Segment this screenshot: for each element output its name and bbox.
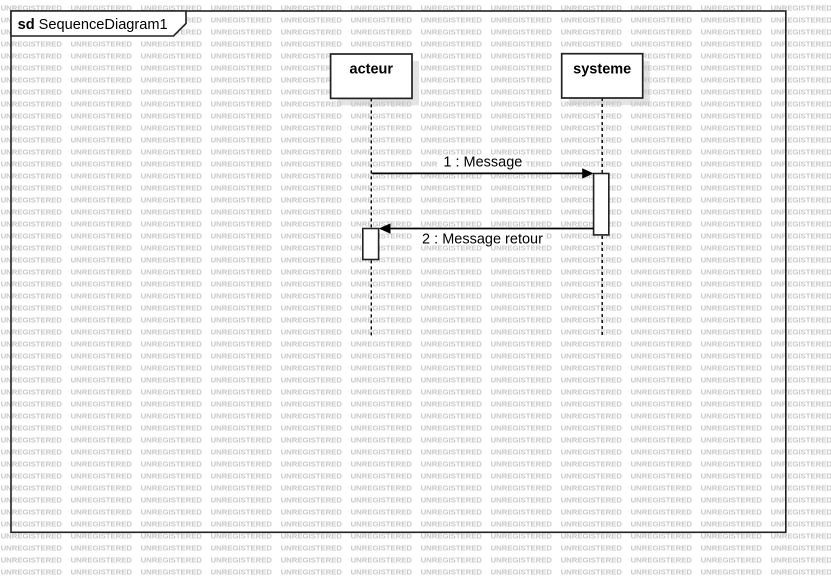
svg-text:systeme: systeme [573, 62, 631, 78]
svg-text:sd SequenceDiagram1: sd SequenceDiagram1 [18, 17, 168, 33]
svg-text:2 : Message retour: 2 : Message retour [422, 231, 543, 247]
svg-text:1 : Message: 1 : Message [443, 155, 522, 171]
svg-text:acteur: acteur [350, 62, 394, 78]
